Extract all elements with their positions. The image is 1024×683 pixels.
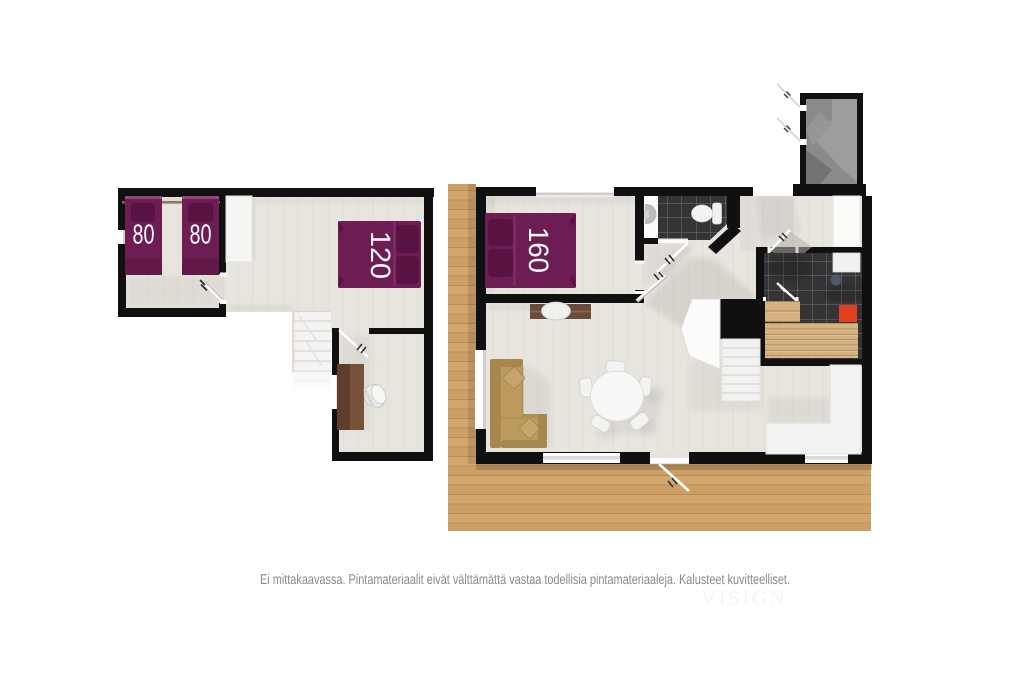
svg-text:VISIGN: VISIGN bbox=[701, 586, 787, 610]
svg-text:80: 80 bbox=[190, 219, 212, 250]
svg-text:80: 80 bbox=[133, 219, 155, 250]
svg-text:120: 120 bbox=[365, 231, 396, 279]
svg-text:160: 160 bbox=[523, 227, 554, 273]
